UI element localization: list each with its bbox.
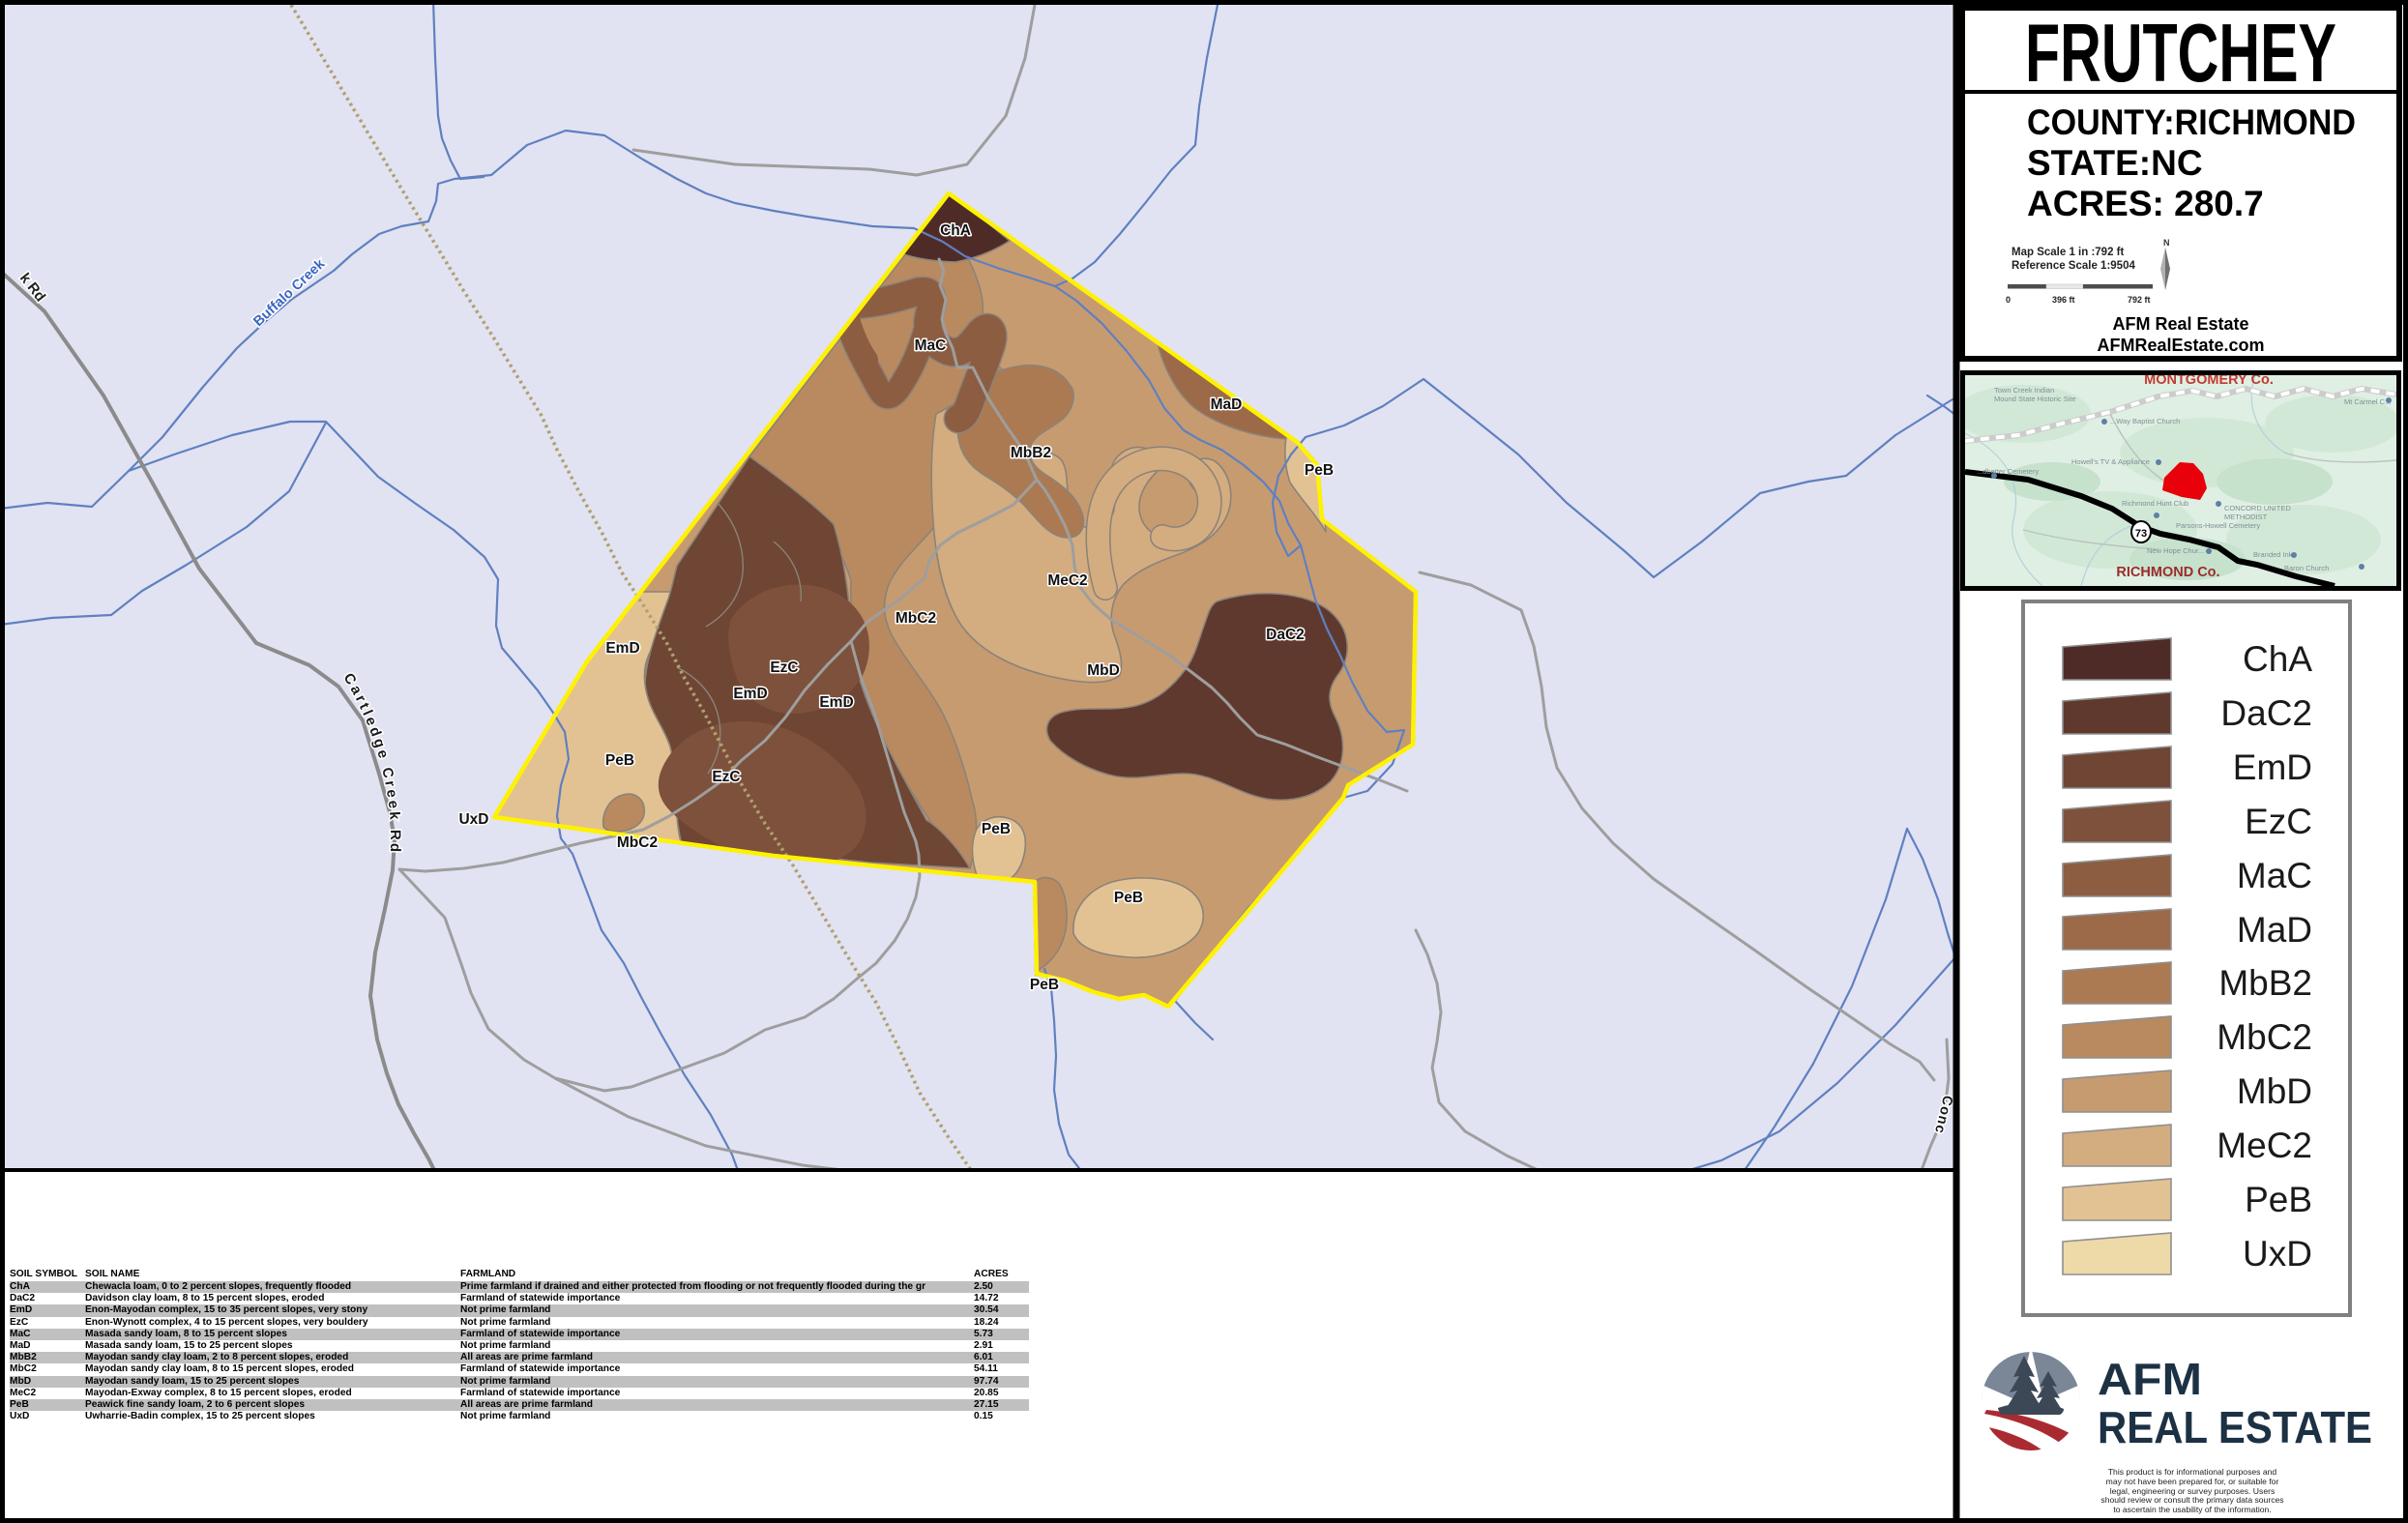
svg-text:73: 73 xyxy=(2135,528,2147,540)
svg-text:Richmond Hunt Club: Richmond Hunt Club xyxy=(2122,499,2188,508)
svg-text:N: N xyxy=(2163,238,2170,248)
svg-text:Town Creek Indian: Town Creek Indian xyxy=(1994,386,2054,395)
svg-text:MbD: MbD xyxy=(2237,1071,2312,1111)
svg-text:ChA: ChA xyxy=(2243,639,2312,679)
svg-text:Map Scale 1 in :792 ft: Map Scale 1 in :792 ft xyxy=(2012,247,2124,258)
svg-text:UxD: UxD xyxy=(2243,1234,2312,1274)
svg-text:EzC: EzC xyxy=(2245,802,2312,841)
svg-text:FRUTCHEY: FRUTCHEY xyxy=(2025,11,2336,92)
svg-text:COUNTY:RICHMOND: COUNTY:RICHMOND xyxy=(2027,103,2356,142)
svg-text:MaC: MaC xyxy=(2237,856,2312,895)
svg-text:ACRES: 280.7: ACRES: 280.7 xyxy=(2027,184,2264,223)
svg-text:AFM: AFM xyxy=(2098,1354,2202,1404)
svg-text:396 ft: 396 ft xyxy=(2052,295,2075,305)
svg-text:PeB: PeB xyxy=(2245,1180,2312,1219)
svg-text:Baron Church: Baron Church xyxy=(2284,564,2329,572)
svg-text:EmD: EmD xyxy=(819,694,853,711)
svg-text:EmD: EmD xyxy=(605,640,639,657)
svg-text:EzC: EzC xyxy=(770,659,798,676)
svg-text:Howell's TV & Appliance: Howell's TV & Appliance xyxy=(2071,457,2150,466)
svg-text:STATE:NC: STATE:NC xyxy=(2027,143,2203,183)
svg-text:Reference Scale 1:9504: Reference Scale 1:9504 xyxy=(2012,260,2135,272)
svg-text:UxD: UxD xyxy=(458,811,488,828)
svg-text:EmD: EmD xyxy=(2233,747,2312,787)
svg-text:PeB: PeB xyxy=(605,752,634,769)
svg-text:792 ft: 792 ft xyxy=(2128,295,2151,305)
svg-text:EzC: EzC xyxy=(712,769,740,785)
svg-text:DaC2: DaC2 xyxy=(1266,627,1305,643)
svg-text:MaC: MaC xyxy=(915,337,947,354)
svg-text:MbD: MbD xyxy=(1087,662,1120,679)
svg-text:PeB: PeB xyxy=(1305,462,1334,479)
svg-text:ChA: ChA xyxy=(940,222,971,239)
svg-text:New Hope Chur...: New Hope Chur... xyxy=(2147,546,2204,555)
svg-text:PeB: PeB xyxy=(982,821,1011,837)
svg-text:MaD: MaD xyxy=(2237,910,2312,950)
svg-text:MbB2: MbB2 xyxy=(2218,963,2312,1003)
svg-text:Mound State Historic Site: Mound State Historic Site xyxy=(1994,395,2076,403)
svg-text:...Way Baptist Church: ...Way Baptist Church xyxy=(2110,417,2180,425)
svg-text:...dbetter Cemetery: ...dbetter Cemetery xyxy=(1977,467,2039,476)
svg-text:Parsons-Howell Cemetery: Parsons-Howell Cemetery xyxy=(2176,521,2260,530)
svg-text:MbC2: MbC2 xyxy=(896,610,936,627)
svg-text:MONTGOMERY Co.: MONTGOMERY Co. xyxy=(2144,375,2274,388)
svg-text:MbC2: MbC2 xyxy=(617,835,658,851)
svg-text:PeB: PeB xyxy=(1030,977,1059,993)
svg-text:PeB: PeB xyxy=(1114,890,1143,906)
svg-text:Mt Carmel C...: Mt Carmel C... xyxy=(2344,397,2391,406)
svg-text:Branded Inks: Branded Inks xyxy=(2253,550,2296,559)
svg-text:MeC2: MeC2 xyxy=(2217,1126,2312,1165)
svg-text:EmD: EmD xyxy=(733,686,767,702)
svg-text:MaD: MaD xyxy=(1211,396,1243,413)
svg-text:METHODIST: METHODIST xyxy=(2224,513,2268,521)
svg-text:RICHMOND Co.: RICHMOND Co. xyxy=(2116,565,2219,580)
svg-text:REAL ESTATE: REAL ESTATE xyxy=(2098,1402,2372,1452)
svg-text:MbB2: MbB2 xyxy=(1011,445,1051,461)
svg-text:MeC2: MeC2 xyxy=(1047,572,1087,589)
svg-text:MbC2: MbC2 xyxy=(2217,1017,2312,1057)
svg-text:CONCORD UNITED: CONCORD UNITED xyxy=(2224,504,2291,513)
svg-text:0: 0 xyxy=(2006,295,2011,305)
svg-text:DaC2: DaC2 xyxy=(2220,693,2312,733)
